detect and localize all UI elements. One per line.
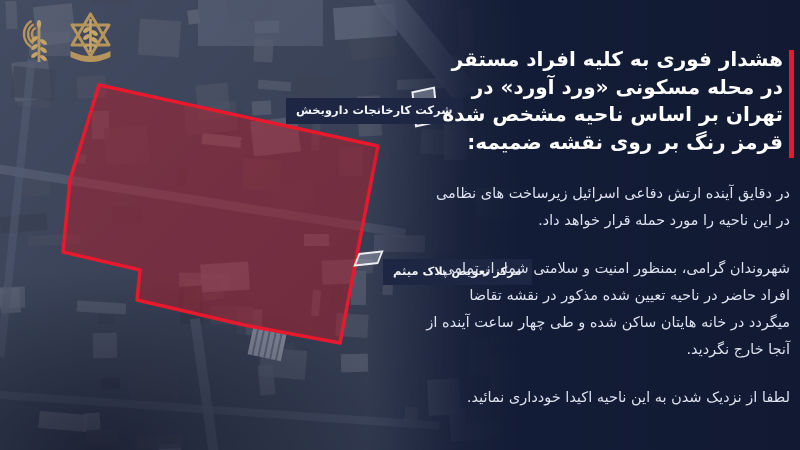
warning-graphic: شرکت کارخانجات داروبخش مرکز تعویض پلاک م… xyxy=(0,0,800,450)
idf-emblem-icon xyxy=(67,12,114,70)
logo-group xyxy=(18,12,114,70)
idf-spokesperson-logo-icon xyxy=(18,12,60,70)
warning-paragraph-instructions: شهروندان گرامی، بمنظور امنیت و سلامتی شم… xyxy=(426,256,790,364)
warning-heading: هشدار فوری به کلیه افراد مستقر در محله م… xyxy=(433,46,783,156)
warning-paragraph-keep-away: لطفا از نزدیک شدن به این ناحیه اکیدا خود… xyxy=(426,385,790,412)
warning-paragraph-attack-notice: در دقایق آینده ارتش دفاعی اسرائیل زیرساخ… xyxy=(426,181,790,235)
warning-body: در دقایق آینده ارتش دفاعی اسرائیل زیرساخ… xyxy=(426,181,790,433)
heading-accent-bar xyxy=(789,50,794,158)
